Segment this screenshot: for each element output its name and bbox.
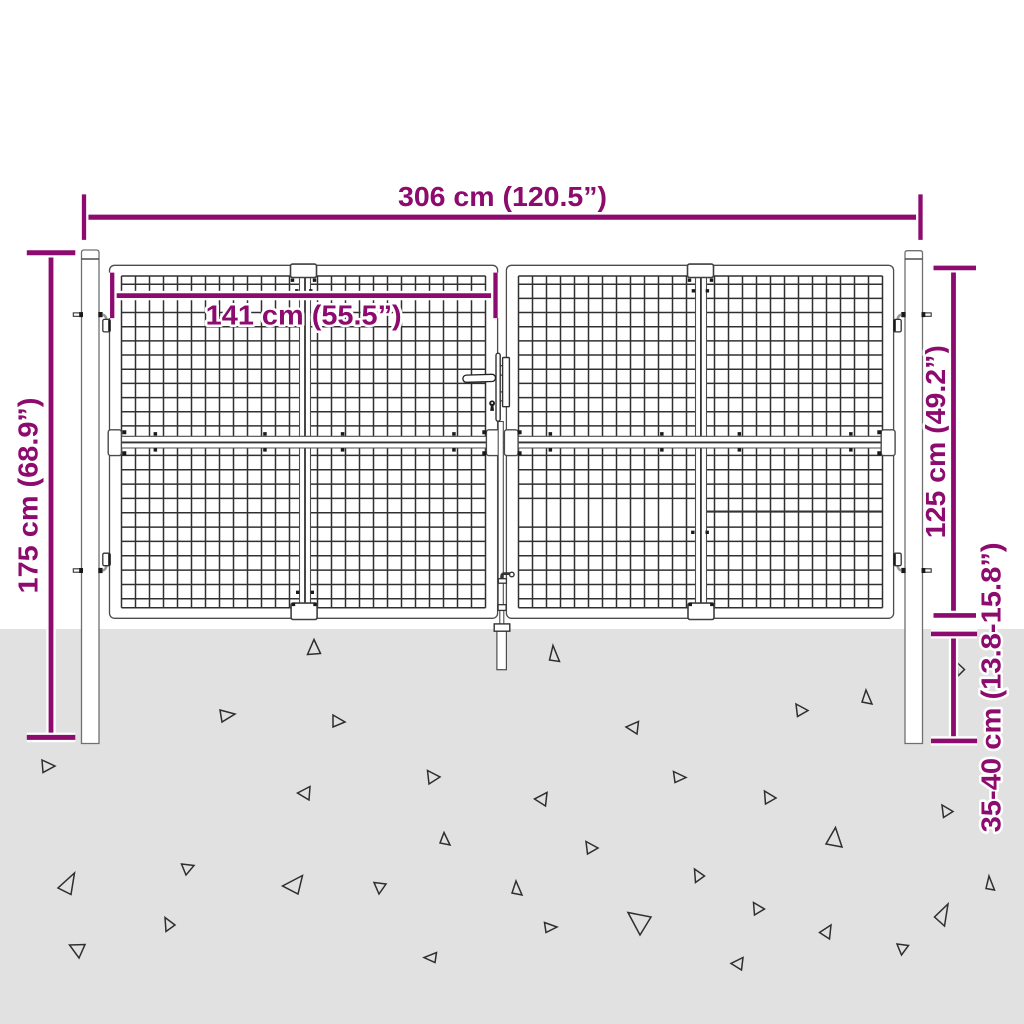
svg-text:306 cm (120.5”): 306 cm (120.5”) — [398, 181, 607, 212]
svg-text:125 cm (49.2”): 125 cm (49.2”) — [920, 345, 951, 538]
svg-text:35-40 cm (13.8-15.8”): 35-40 cm (13.8-15.8”) — [976, 542, 1007, 832]
svg-text:141 cm (55.5”): 141 cm (55.5”) — [206, 300, 402, 331]
svg-text:175 cm (68.9”): 175 cm (68.9”) — [13, 398, 44, 594]
